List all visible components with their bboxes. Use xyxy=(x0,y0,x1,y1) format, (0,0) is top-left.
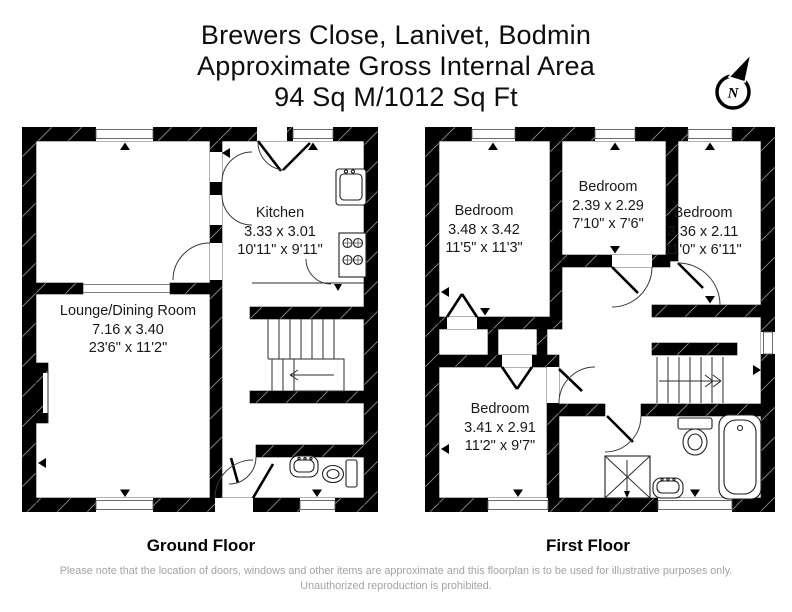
ground-floor-caption: Ground Floor xyxy=(101,536,301,556)
ground-detail-lines xyxy=(83,283,364,293)
room-size-metric: 3.41 x 2.91 xyxy=(420,419,580,438)
room-name: Kitchen xyxy=(200,204,360,223)
disclaimer-text: Please note that the location of doors, … xyxy=(46,564,746,594)
room-name: Bedroom xyxy=(623,204,783,223)
basin-icon xyxy=(653,478,683,498)
floorplan-page: Brewers Close, Lanivet, Bodmin Approxima… xyxy=(0,0,792,612)
bath-icon xyxy=(719,415,761,499)
wc-toilet-icon xyxy=(323,460,358,487)
shower-icon xyxy=(605,456,650,498)
room-size-imperial: 23'6" x 11'2" xyxy=(28,339,228,358)
room-label-bedroom4: Bedroom 3.41 x 2.91 11'2" x 9'7" xyxy=(420,400,580,456)
room-label-bedroom3: Bedroom 3.36 x 2.11 11'0" x 6'11" xyxy=(623,204,783,260)
room-name: Bedroom xyxy=(420,400,580,419)
page-title: Brewers Close, Lanivet, Bodmin Approxima… xyxy=(0,20,792,113)
staircase-icon xyxy=(268,319,344,391)
room-size-metric: 7.16 x 3.40 xyxy=(28,321,228,340)
room-name: Lounge/Dining Room xyxy=(28,302,228,321)
compass-north-label: N xyxy=(727,86,740,102)
title-area-value: 94 Sq M/1012 Sq Ft xyxy=(0,82,792,113)
room-size-imperial: 11'0" x 6'11" xyxy=(623,241,783,260)
wc-basin-icon xyxy=(290,456,318,477)
staircase-icon xyxy=(657,357,723,403)
room-size-metric: 3.36 x 2.11 xyxy=(623,223,783,242)
north-compass-icon: N xyxy=(705,45,765,123)
kitchen-sink-icon xyxy=(336,169,366,205)
room-size-metric: 3.33 x 3.01 xyxy=(200,223,360,242)
title-area-label: Approximate Gross Internal Area xyxy=(0,51,792,82)
room-size-imperial: 11'2" x 9'7" xyxy=(420,437,580,456)
room-label-lounge: Lounge/Dining Room 7.16 x 3.40 23'6" x 1… xyxy=(28,302,228,358)
first-floor-caption: First Floor xyxy=(488,536,688,556)
toilet-icon xyxy=(678,418,712,455)
title-address: Brewers Close, Lanivet, Bodmin xyxy=(0,20,792,51)
room-label-kitchen: Kitchen 3.33 x 3.01 10'11" x 9'11" xyxy=(200,204,360,260)
room-size-imperial: 11'5" x 11'3" xyxy=(404,239,564,258)
room-name: Bedroom xyxy=(528,178,688,197)
room-size-imperial: 10'11" x 9'11" xyxy=(200,241,360,260)
